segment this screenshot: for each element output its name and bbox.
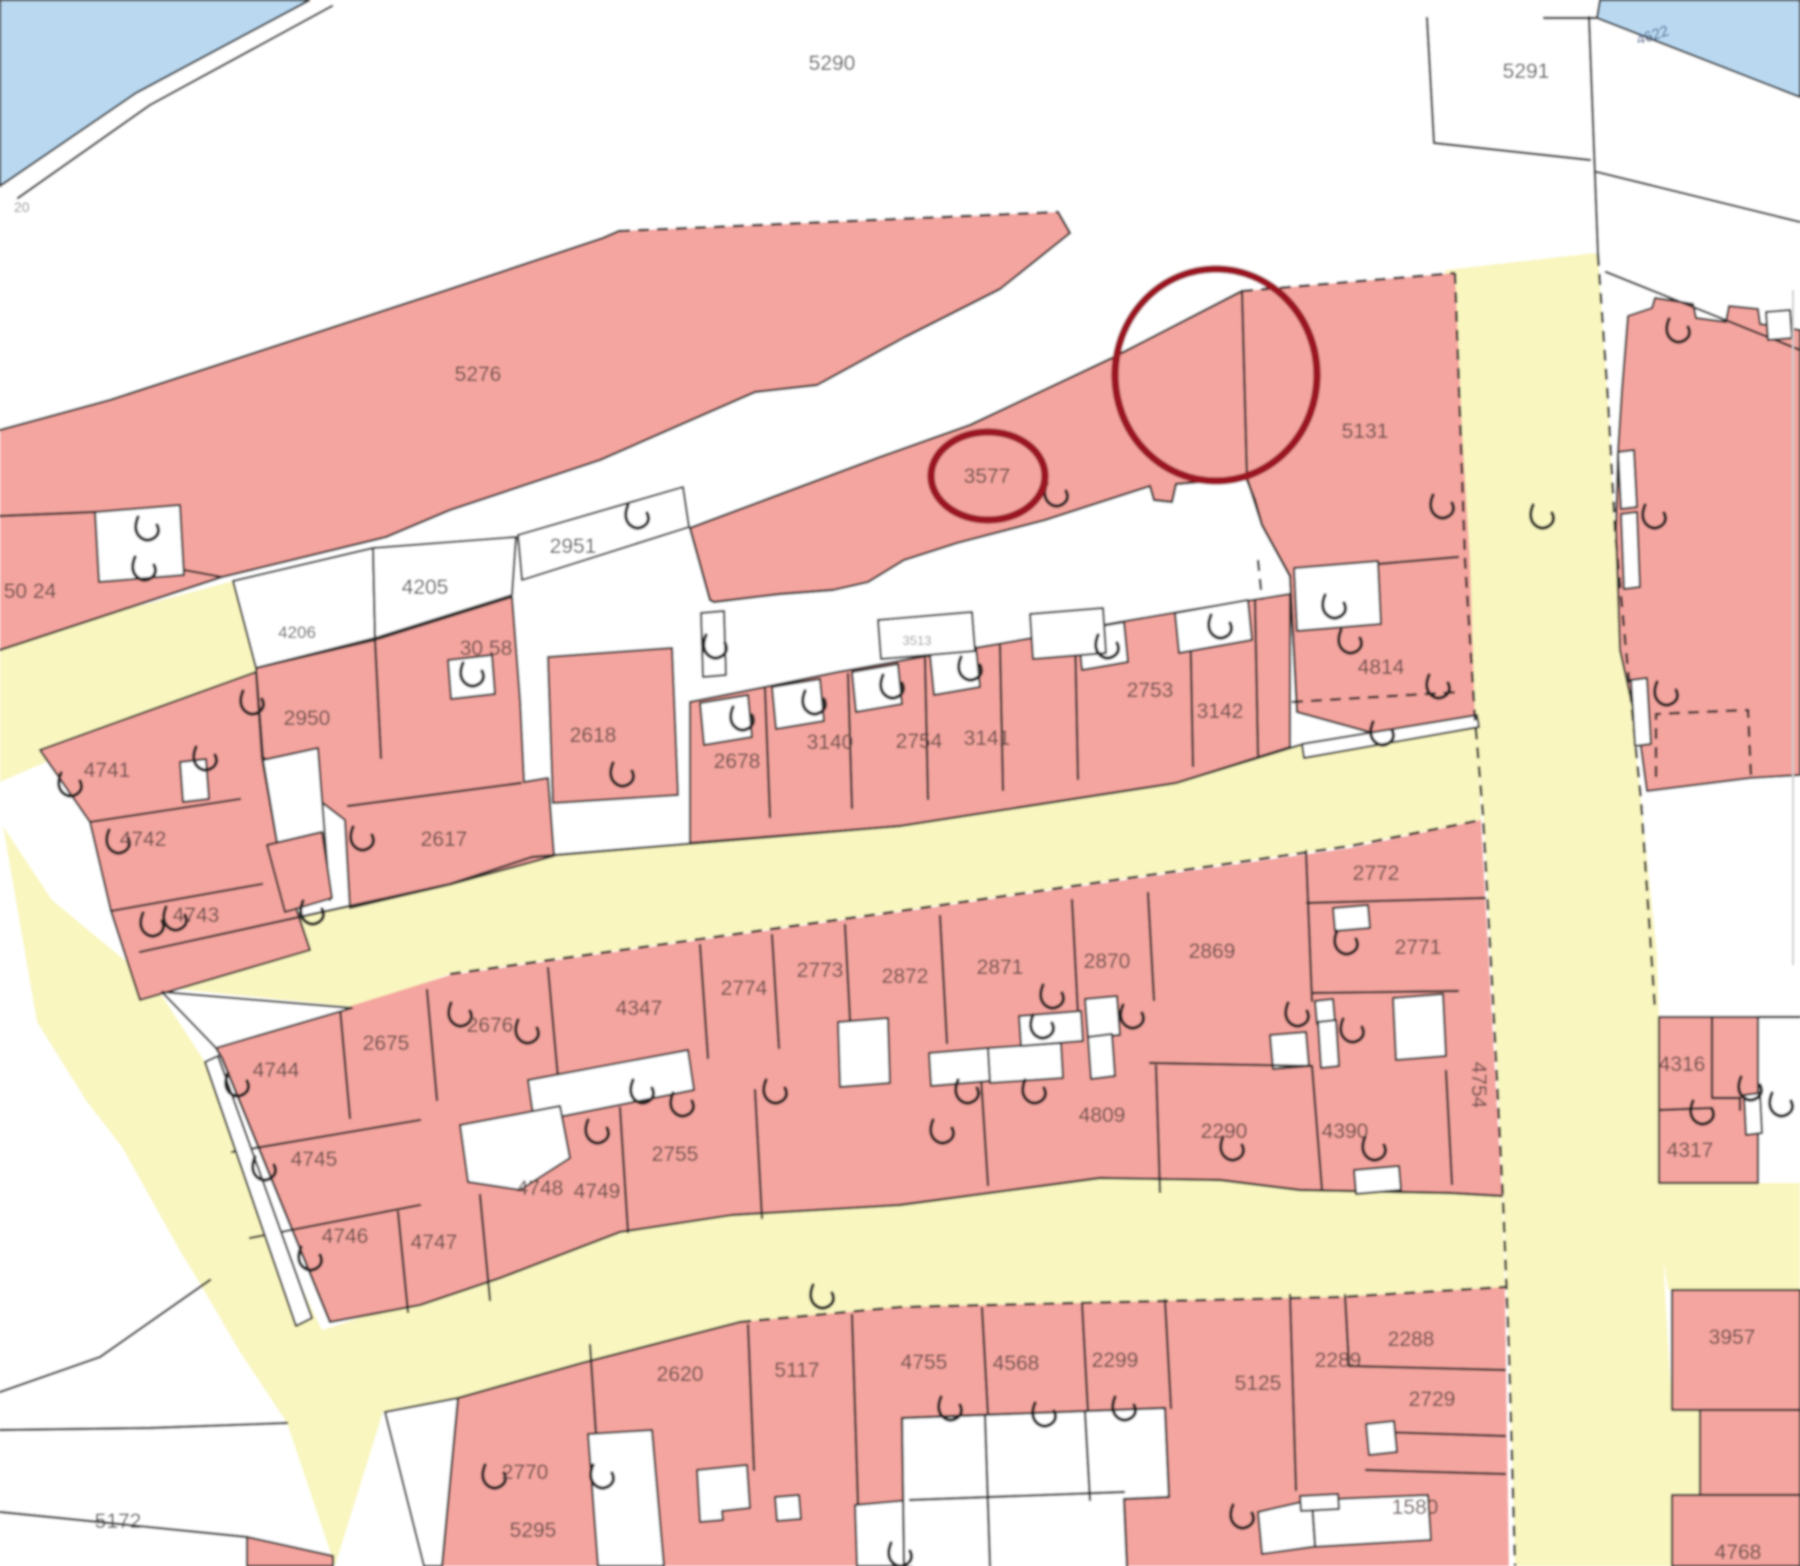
svg-text:2289: 2289: [1315, 1349, 1362, 1372]
svg-text:3957: 3957: [1709, 1326, 1756, 1349]
svg-text:50 24: 50 24: [4, 580, 57, 603]
svg-text:2770: 2770: [502, 1461, 549, 1484]
svg-text:4743: 4743: [173, 904, 220, 927]
svg-text:3577: 3577: [964, 465, 1011, 488]
svg-text:4206: 4206: [278, 623, 316, 642]
svg-text:4741: 4741: [84, 759, 131, 782]
svg-text:1580: 1580: [1392, 1496, 1439, 1519]
svg-text:2753: 2753: [1127, 679, 1174, 702]
svg-text:5172: 5172: [95, 1510, 142, 1533]
svg-text:4316: 4316: [1659, 1053, 1706, 1076]
svg-text:5131: 5131: [1342, 420, 1389, 443]
svg-text:2678: 2678: [714, 750, 761, 773]
svg-text:5291: 5291: [1503, 60, 1550, 83]
svg-text:5117: 5117: [774, 1359, 819, 1382]
svg-text:4748: 4748: [517, 1177, 564, 1200]
svg-text:4205: 4205: [402, 576, 449, 599]
svg-text:2754: 2754: [896, 730, 943, 753]
svg-text:2774: 2774: [721, 977, 768, 1000]
svg-text:4568: 4568: [993, 1352, 1040, 1375]
svg-text:5290: 5290: [809, 52, 856, 75]
svg-text:4347: 4347: [616, 997, 663, 1020]
svg-text:30 58: 30 58: [460, 637, 513, 660]
svg-text:2676: 2676: [467, 1014, 514, 1037]
svg-text:2872: 2872: [882, 965, 929, 988]
svg-text:2618: 2618: [570, 724, 617, 747]
svg-text:4755: 4755: [901, 1351, 948, 1374]
svg-text:4814: 4814: [1358, 656, 1405, 679]
svg-text:2620: 2620: [657, 1363, 704, 1386]
svg-text:20: 20: [14, 199, 30, 215]
svg-text:4317: 4317: [1667, 1139, 1714, 1162]
svg-text:2773: 2773: [797, 959, 844, 982]
svg-text:4754: 4754: [1467, 1062, 1490, 1109]
svg-text:4744: 4744: [253, 1059, 300, 1082]
svg-text:3142: 3142: [1197, 700, 1244, 723]
svg-text:2871: 2871: [977, 956, 1024, 979]
svg-text:4745: 4745: [291, 1148, 338, 1171]
svg-text:3141: 3141: [964, 727, 1011, 750]
svg-text:2869: 2869: [1189, 940, 1236, 963]
svg-text:2951: 2951: [550, 535, 597, 558]
svg-text:2771: 2771: [1395, 936, 1442, 959]
svg-text:3513: 3513: [903, 633, 932, 648]
svg-text:4749: 4749: [574, 1180, 621, 1203]
svg-text:2617: 2617: [421, 828, 468, 851]
svg-text:5276: 5276: [455, 363, 502, 386]
svg-text:2290: 2290: [1201, 1120, 1248, 1143]
svg-text:4747: 4747: [411, 1231, 458, 1254]
svg-text:3140: 3140: [807, 731, 854, 754]
svg-text:2675: 2675: [363, 1032, 410, 1055]
svg-text:2870: 2870: [1084, 950, 1131, 973]
svg-text:2755: 2755: [652, 1143, 699, 1166]
svg-text:4768: 4768: [1715, 1541, 1762, 1564]
svg-text:2772: 2772: [1353, 862, 1400, 885]
svg-text:2729: 2729: [1409, 1388, 1456, 1411]
svg-text:4742: 4742: [120, 828, 167, 851]
svg-text:2299: 2299: [1092, 1349, 1139, 1372]
svg-text:2950: 2950: [284, 707, 331, 730]
svg-text:5125: 5125: [1235, 1372, 1282, 1395]
svg-text:2288: 2288: [1388, 1328, 1435, 1351]
svg-text:4390: 4390: [1322, 1120, 1369, 1143]
svg-text:5295: 5295: [510, 1519, 557, 1542]
svg-text:4746: 4746: [322, 1225, 369, 1248]
svg-text:4809: 4809: [1079, 1104, 1126, 1127]
